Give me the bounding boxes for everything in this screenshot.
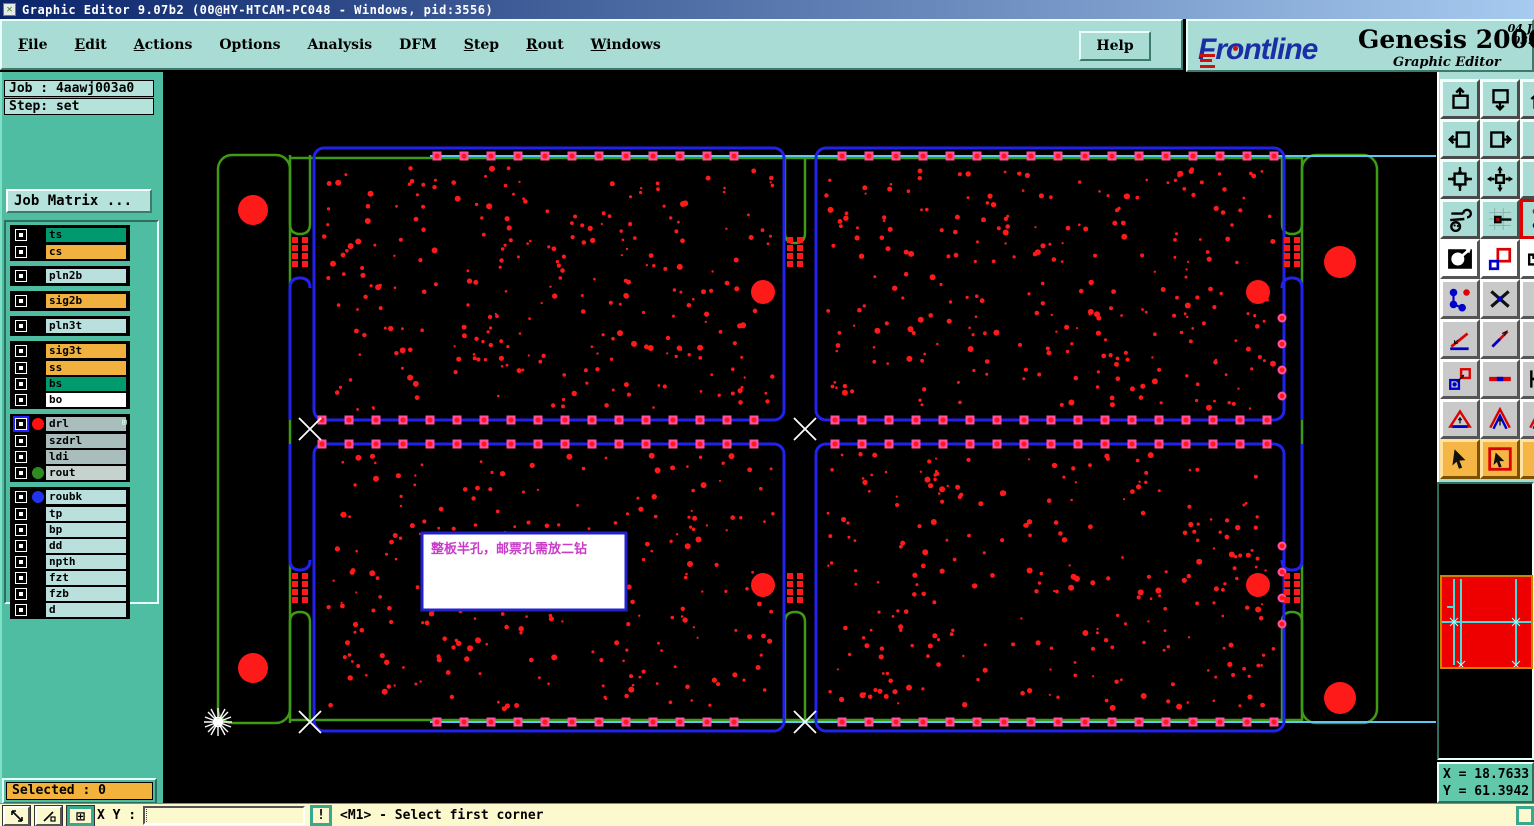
select-c-button[interactable]: C (1520, 439, 1534, 479)
product-subtitle: Graphic Editor (1393, 55, 1501, 70)
layer-checkbox-npth[interactable] (15, 556, 27, 568)
menu-item-dfm[interactable]: DFM (399, 37, 437, 53)
layer-name-bp[interactable]: bp (46, 523, 126, 537)
layer-row-fzb[interactable]: fzb (12, 585, 128, 601)
measure-dot-button[interactable]: · (1520, 319, 1534, 359)
layer-group: tscs (10, 225, 130, 261)
zoom-in-window-button[interactable] (1440, 159, 1480, 199)
menu-item-actions[interactable]: Actions (134, 37, 193, 53)
layer-name-rout[interactable]: rout (46, 466, 126, 480)
statusbar-extra-box (1516, 806, 1534, 825)
layer-name-sig2b[interactable]: sig2b (46, 294, 126, 308)
layer-checkbox-drl[interactable] (15, 418, 27, 430)
date-readout: 04 J 03: (1508, 23, 1532, 47)
step-label: Step: set (4, 98, 154, 115)
app-icon: ✕ (3, 3, 16, 16)
layer-name-bs[interactable]: bs (46, 377, 126, 391)
window-right-button[interactable] (1480, 119, 1520, 159)
layer-list: tscspln2bsig2bpln3tsig3tssbsbodrl⊞szdrll… (4, 220, 159, 604)
layer-checkbox-roubk[interactable] (15, 491, 27, 503)
layer-name-tp[interactable]: tp (46, 507, 126, 521)
layer-checkbox-rout[interactable] (15, 467, 27, 479)
layer-row-roubk[interactable]: roubk (12, 489, 128, 505)
layer-checkbox-bo[interactable] (15, 394, 27, 406)
layer-indicator-dot (32, 418, 44, 430)
board-outlines-blue (290, 148, 1302, 731)
measure-width-button[interactable] (1480, 359, 1520, 399)
select-cursor-button[interactable] (1440, 439, 1480, 479)
y-readout: Y = 61.3942 (1443, 783, 1532, 800)
job-label: Job : 4aawj003a0 (4, 80, 154, 97)
window-down-button[interactable] (1480, 79, 1520, 119)
title-bar: ✕ Graphic Editor 9.07b2 (00@HY-HTCAM-PC0… (0, 0, 1534, 19)
navigator-crosshair (1442, 577, 1531, 667)
menu-item-options[interactable]: Options (219, 37, 280, 53)
layer-name-ss[interactable]: ss (46, 361, 126, 375)
measure-edge-button[interactable] (1520, 359, 1534, 399)
measure-angle-button[interactable] (1440, 319, 1480, 359)
navigator-board-thumbnail (1440, 575, 1533, 669)
pcb-drawing: 整板半孔，邮票孔需放二钻 (164, 72, 1436, 803)
sidebar: Job : 4aawj003a0 Step: set Job Matrix ..… (0, 72, 163, 803)
angle-line-icon (41, 808, 57, 824)
application-window: ✕ Graphic Editor 9.07b2 (00@HY-HTCAM-PC0… (0, 0, 1534, 826)
invert-view-button[interactable] (1440, 239, 1480, 279)
datum-point-button[interactable] (1480, 199, 1520, 239)
x-readout: X = 18.7633 (1443, 766, 1532, 783)
layer-group: sig2b (10, 291, 130, 311)
layer-name-cs[interactable]: cs (46, 245, 126, 259)
layer-name-fzb[interactable]: fzb (46, 587, 126, 601)
layer-checkbox-szdrl[interactable] (15, 435, 27, 447)
selected-count-badge: Selected : 0 (6, 782, 153, 800)
layer-checkbox-dd[interactable] (15, 540, 27, 552)
layer-name-roubk[interactable]: roubk (46, 490, 126, 504)
layer-grid-icon: ⊞ (122, 419, 127, 428)
grid-window-button[interactable]: ⊞ (67, 806, 94, 826)
layer-row-pln2b[interactable]: pln2b (12, 268, 128, 284)
layer-row-tp[interactable]: tp (12, 505, 128, 521)
warning-button[interactable]: ! (310, 805, 332, 826)
window-title: Graphic Editor 9.07b2 (00@HY-HTCAM-PC048… (22, 3, 493, 17)
zoom-fit-button[interactable] (1480, 159, 1520, 199)
frontline-logo: Frontline (1198, 33, 1317, 67)
brand-panel: Frontline Genesis 2000 Graphic Editor 04… (1186, 19, 1534, 72)
layer-name-ts[interactable]: ts (46, 228, 126, 242)
layer-checkbox-sig3t[interactable] (15, 345, 27, 357)
selected-badge-frame: Selected : 0 (2, 778, 157, 804)
layer-group: roubktpbpddnpthfztfzbd (10, 487, 130, 619)
layer-row-sig3t[interactable]: sig3t (12, 343, 128, 359)
status-message: <M1> - Select first corner (340, 808, 544, 823)
menu-item-analysis[interactable]: Analysis (308, 37, 373, 53)
layer-name-fzt[interactable]: fzt (46, 571, 126, 585)
layer-name-dd[interactable]: dd (46, 539, 126, 553)
layer-indicator-dot (32, 491, 44, 503)
layer-row-ldi[interactable]: ldi (12, 448, 128, 464)
layer-checkbox-ss[interactable] (15, 362, 27, 374)
redraw-button[interactable]: ↻ (1520, 119, 1534, 159)
layer-checkbox-pln2b[interactable] (15, 270, 27, 282)
diagonal-arrow-icon (9, 808, 25, 824)
right-toolbar: ↻1O·C (1437, 72, 1534, 482)
layer-checkbox-tp[interactable] (15, 508, 27, 520)
cursor-coordinates: X = 18.7633 Y = 61.3942 (1437, 762, 1534, 803)
layer-row-ts[interactable]: ts (12, 227, 128, 243)
snap-arrow-button[interactable] (3, 806, 30, 826)
xy-input[interactable] (143, 806, 305, 825)
menu-item-rout[interactable]: Rout (526, 37, 564, 53)
select-window-button[interactable] (1480, 439, 1520, 479)
menu-item-edit[interactable]: Edit (75, 37, 107, 53)
layer-checkbox-sig2b[interactable] (15, 295, 27, 307)
layer-row-dd[interactable]: dd (12, 537, 128, 553)
layer-group: pln3t (10, 316, 130, 336)
layer-checkbox-fzt[interactable] (15, 572, 27, 584)
menu-bar: FileEditActionsOptionsAnalysisDFMStepRou… (0, 19, 1183, 70)
layer-row-fzt[interactable]: fzt (12, 569, 128, 585)
net-nodes-button[interactable] (1440, 279, 1480, 319)
menu-item-windows[interactable]: Windows (591, 37, 661, 53)
layer-checkbox-ldi[interactable] (15, 451, 27, 463)
active-layer-tool-button[interactable] (1520, 199, 1534, 239)
layer-name-szdrl[interactable]: szdrl (46, 434, 126, 448)
layer-row-bo[interactable]: bo (12, 391, 128, 407)
menu-items: FileEditActionsOptionsAnalysisDFMStepRou… (18, 21, 661, 68)
layer-checkbox-ts[interactable] (15, 229, 27, 241)
layer-checkbox-d[interactable] (15, 604, 27, 616)
transform-shapes-button[interactable] (1480, 239, 1520, 279)
layer-name-drl[interactable]: drl (46, 417, 126, 431)
text-caret (146, 809, 147, 822)
layer-group: pln2b (10, 266, 130, 286)
layer-name-sig3t[interactable]: sig3t (46, 344, 126, 358)
window-up-button[interactable] (1440, 79, 1480, 119)
layer-checkbox-bs[interactable] (15, 378, 27, 390)
layer-name-bo[interactable]: bo (46, 393, 126, 407)
layer-checkbox-bp[interactable] (15, 524, 27, 536)
measure-ruler-button[interactable] (1520, 239, 1534, 279)
layer-row-bs[interactable]: bs (12, 375, 128, 391)
logo-dashes-icon (1200, 51, 1216, 69)
layer-name-pln3t[interactable]: pln3t (46, 319, 126, 333)
layer-name-npth[interactable]: npth (46, 555, 126, 569)
layer-name-pln2b[interactable]: pln2b (46, 269, 126, 283)
layer-row-sig2b[interactable]: sig2b (12, 293, 128, 309)
layer-row-d[interactable]: d (12, 601, 128, 617)
note-text: 整板半孔，邮票孔需放二钻 (430, 541, 587, 557)
xy-label: X Y : (97, 808, 136, 823)
zoom-one-button[interactable]: 1 (1520, 159, 1534, 199)
layer-checkbox-cs[interactable] (15, 246, 27, 258)
layer-row-pln3t[interactable]: pln3t (12, 318, 128, 334)
layer-name-ldi[interactable]: ldi (46, 450, 126, 464)
tooling-holes (238, 195, 1356, 714)
job-matrix-button[interactable]: Job Matrix ... (6, 189, 152, 213)
layer-checkbox-pln3t[interactable] (15, 320, 27, 332)
copy-shape-button[interactable] (1440, 359, 1480, 399)
origin-star-icon (204, 708, 232, 736)
status-bar: ⊞ X Y : ! <M1> - Select first corner (0, 803, 1534, 826)
layer-group: sig3tssbsbo (10, 341, 130, 409)
layer-row-npth[interactable]: npth (12, 553, 128, 569)
layer-indicator-dot (32, 467, 44, 479)
layer-row-ss[interactable]: ss (12, 359, 128, 375)
menu-help[interactable]: Help (1079, 31, 1151, 61)
setup-tools-button[interactable] (1440, 199, 1480, 239)
layer-name-d[interactable]: d (46, 603, 126, 617)
angle-snap-button[interactable] (35, 806, 62, 826)
delete-mark-button[interactable] (1480, 279, 1520, 319)
layer-row-szdrl[interactable]: szdrl (12, 432, 128, 448)
layer-row-drl[interactable]: drl⊞ (12, 416, 128, 432)
grid-window-icon: ⊞ (76, 807, 85, 825)
layer-row-rout[interactable]: rout (12, 464, 128, 480)
overview-navigator[interactable] (1437, 482, 1534, 760)
layer-checkbox-fzb[interactable] (15, 588, 27, 600)
layer-row-cs[interactable]: cs (12, 243, 128, 259)
triangle-tool-button[interactable] (1440, 399, 1480, 439)
chevron-tool2-button[interactable] (1520, 399, 1534, 439)
note-box: 整板半孔，邮票孔需放二钻 (422, 533, 626, 610)
chevron-tool-button[interactable] (1480, 399, 1520, 439)
window-left-button[interactable] (1440, 119, 1480, 159)
layer-group: drl⊞szdrlldirout (10, 414, 130, 482)
editor-canvas[interactable]: 整板半孔，邮票孔需放二钻 (164, 72, 1436, 803)
layer-row-bp[interactable]: bp (12, 521, 128, 537)
menu-item-file[interactable]: File (18, 37, 48, 53)
menu-item-step[interactable]: Step (464, 37, 499, 53)
window-home-button[interactable] (1520, 79, 1534, 119)
text-tool-button[interactable]: O (1520, 279, 1534, 319)
measure-slope-button[interactable] (1480, 319, 1520, 359)
